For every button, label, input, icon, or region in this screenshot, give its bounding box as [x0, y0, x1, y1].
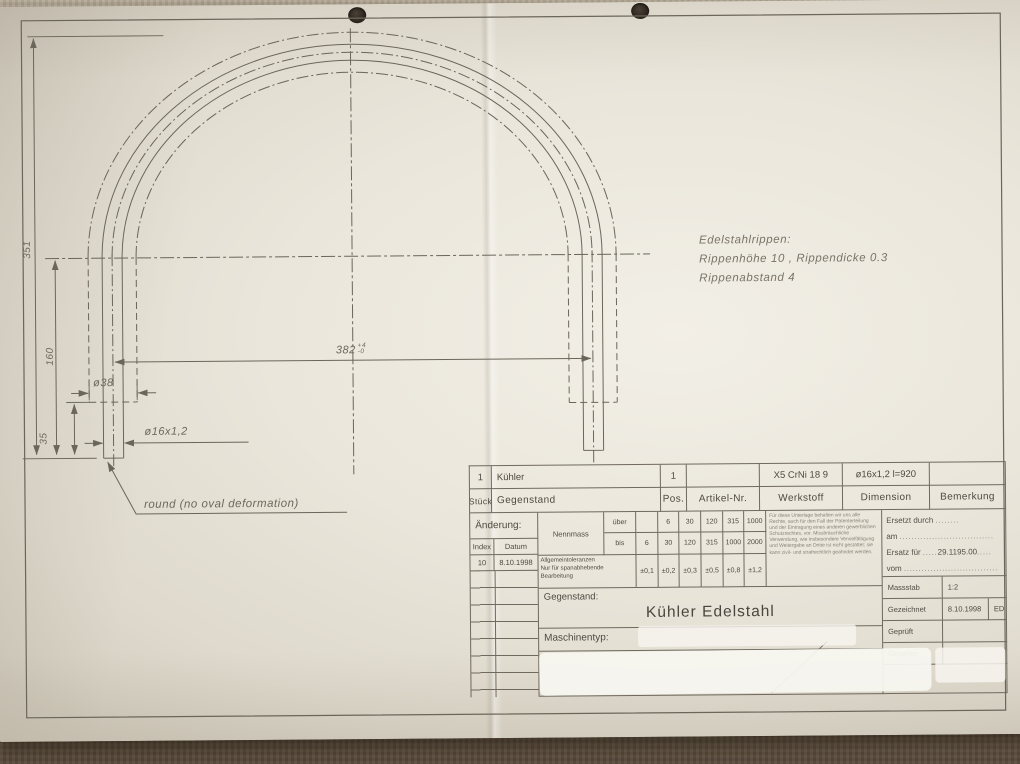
tb-dimension-value: ø16x1,2 l=920 — [843, 463, 930, 487]
tb-bis-v3: 315 — [701, 532, 723, 554]
tb-ueber-v3: 120 — [701, 511, 723, 532]
tb-header-werkstoff: Werkstoff — [760, 486, 843, 511]
tb-werkstoff-value: X5 CrNi 18 9 — [760, 463, 843, 487]
tb-bis-v2: 120 — [679, 533, 701, 555]
tb-gegenstand-cell: Gegenstand: Kühler Edelstahl — [539, 586, 883, 629]
tb-header-artikel: Artikel-Nr. — [687, 487, 760, 512]
ribs-note-title: Edelstahlrippen: — [699, 234, 791, 247]
dim-label-35: 35 — [38, 433, 49, 445]
tb-header-pos: Pos. — [661, 488, 687, 512]
tb-allgemeintoleranzen: Allgemeintoleranzen Nur für spanabhebend… — [538, 555, 636, 589]
tb-massstab-label: Massstab — [883, 577, 943, 599]
span-tolerance: +4-0 — [358, 343, 367, 355]
tb-geprueft-label: Geprüft — [883, 621, 943, 643]
tb-ueber-v2: 30 — [679, 512, 701, 533]
tb-tol-v4: ±0,8 — [723, 554, 744, 587]
tb-gezeichnet-label: Gezeichnet — [883, 599, 943, 621]
tb-header-bemerkung: Bemerkung — [930, 485, 1006, 510]
tb-bemerkung-value — [930, 462, 1006, 486]
tb-index-header: Index — [470, 539, 494, 555]
tb-bis-v1: 30 — [658, 533, 679, 555]
tb-empty-revision-rows — [471, 571, 540, 698]
leader-dots: ........ — [936, 517, 960, 524]
tb-item: Kühler — [492, 465, 661, 489]
round-note: round (no oval deformation) — [144, 498, 299, 511]
leader-dots: ..... — [977, 549, 992, 556]
tb-ueber-v1: 6 — [658, 512, 679, 533]
dim-label-span: 382+4-0 — [336, 344, 366, 356]
tb-nennmass-label: Nennmass — [538, 512, 604, 556]
tb-gezeichnet-initials: ED — [989, 598, 1007, 620]
allg-line2: Nur für spanabhebende — [541, 565, 604, 571]
tb-ueber-v4: 315 — [723, 511, 744, 532]
leader-dots: ................................ — [900, 533, 994, 541]
left-leg-centerline — [112, 254, 114, 468]
ersatz-fuer-label: Ersatz für — [886, 548, 920, 557]
tb-pos-value: 1 — [661, 465, 687, 488]
ribs-note-line3: Rippenabstand 4 — [699, 272, 795, 285]
dim-16-right-arrow — [125, 442, 249, 443]
tb-aenderung-label: Änderung: — [470, 513, 538, 540]
tb-header-gegenstand: Gegenstand — [492, 488, 661, 513]
tb-geprueft-value — [943, 620, 1007, 643]
tb-tol-v1: ±0,2 — [658, 555, 679, 588]
tb-datum-value: 8.10.1998 — [494, 555, 538, 571]
tb-bis-v0: 6 — [636, 533, 658, 555]
dim-label-dia38: ø38 — [93, 377, 114, 389]
tb-legal-text: Für diese Unterlage behalten wir uns all… — [766, 510, 883, 587]
gegenstand-value: Kühler Edelstahl — [539, 602, 882, 623]
dim-label-tube: ø16x1,2 — [144, 426, 187, 438]
tb-bis-v5: 2000 — [744, 532, 766, 554]
ribs-note-line2: Rippenhöhe 10 , Rippendicke 0.3 — [699, 252, 888, 265]
dim-label-351: 351 — [22, 241, 33, 259]
tb-ueber-label: über — [604, 512, 636, 533]
tb-massstab-value: 1:2 — [943, 576, 1007, 599]
ersatz-fuer-value: 29.1195.00 — [938, 547, 978, 556]
tb-bis-label: bis — [604, 533, 636, 555]
span-tol-lower: -0 — [358, 349, 366, 355]
tb-header-stueck: Stück — [470, 489, 492, 513]
vertical-centerline — [350, 28, 354, 474]
tb-tol-v3: ±0,5 — [701, 554, 723, 587]
am-label: am — [886, 532, 897, 541]
tb-tol-v0: ±0,1 — [636, 555, 658, 588]
vom-label: vom — [887, 564, 902, 573]
allg-line3: Bearbeitung — [541, 573, 573, 579]
tb-datum-header: Datum — [494, 539, 538, 555]
ext-line-bottom — [23, 458, 97, 459]
tb-tol-v5: ±1,2 — [744, 554, 766, 587]
paper-sheet: 351 160 35 ø38 ø16x1,2 382+4-0 round (no… — [0, 0, 1020, 742]
tb-gezeichnet-date: 8.10.1998 — [943, 598, 989, 620]
tb-ueber-v5: 1000 — [744, 511, 766, 532]
span-value: 382 — [336, 344, 356, 356]
arch-wall-inner — [121, 58, 583, 258]
tb-qty: 1 — [470, 466, 492, 489]
photo-background: 351 160 35 ø38 ø16x1,2 382+4-0 round (no… — [0, 0, 1020, 764]
tb-index-value: 10 — [470, 555, 494, 571]
leader-dots: ................................ — [904, 565, 998, 573]
dim-label-160: 160 — [45, 347, 56, 365]
gegenstand-label: Gegenstand: — [544, 591, 598, 602]
dim-351 — [33, 39, 36, 455]
leader-dots: ..... — [923, 550, 938, 557]
redaction-patch-maschinentyp — [638, 624, 856, 647]
allg-line1: Allgemeintoleranzen — [540, 557, 594, 563]
redaction-patch-right — [935, 647, 1005, 683]
ext-line-top — [27, 36, 163, 37]
redaction-patch-bottom — [539, 648, 932, 696]
tb-header-dimension: Dimension — [843, 486, 930, 511]
tb-artikel-value — [687, 464, 760, 488]
tb-bis-v4: 1000 — [723, 532, 744, 554]
maschinentyp-label: Maschinentyp: — [544, 632, 609, 644]
ersetzt-durch-label: Ersetzt durch — [886, 516, 933, 525]
tb-ersatz-block: Ersetzt durch ........ am ..............… — [882, 509, 1007, 577]
right-leg-centerline — [592, 250, 594, 462]
tb-ueber-v0 — [636, 512, 658, 533]
tb-tol-v2: ±0,3 — [679, 555, 701, 588]
